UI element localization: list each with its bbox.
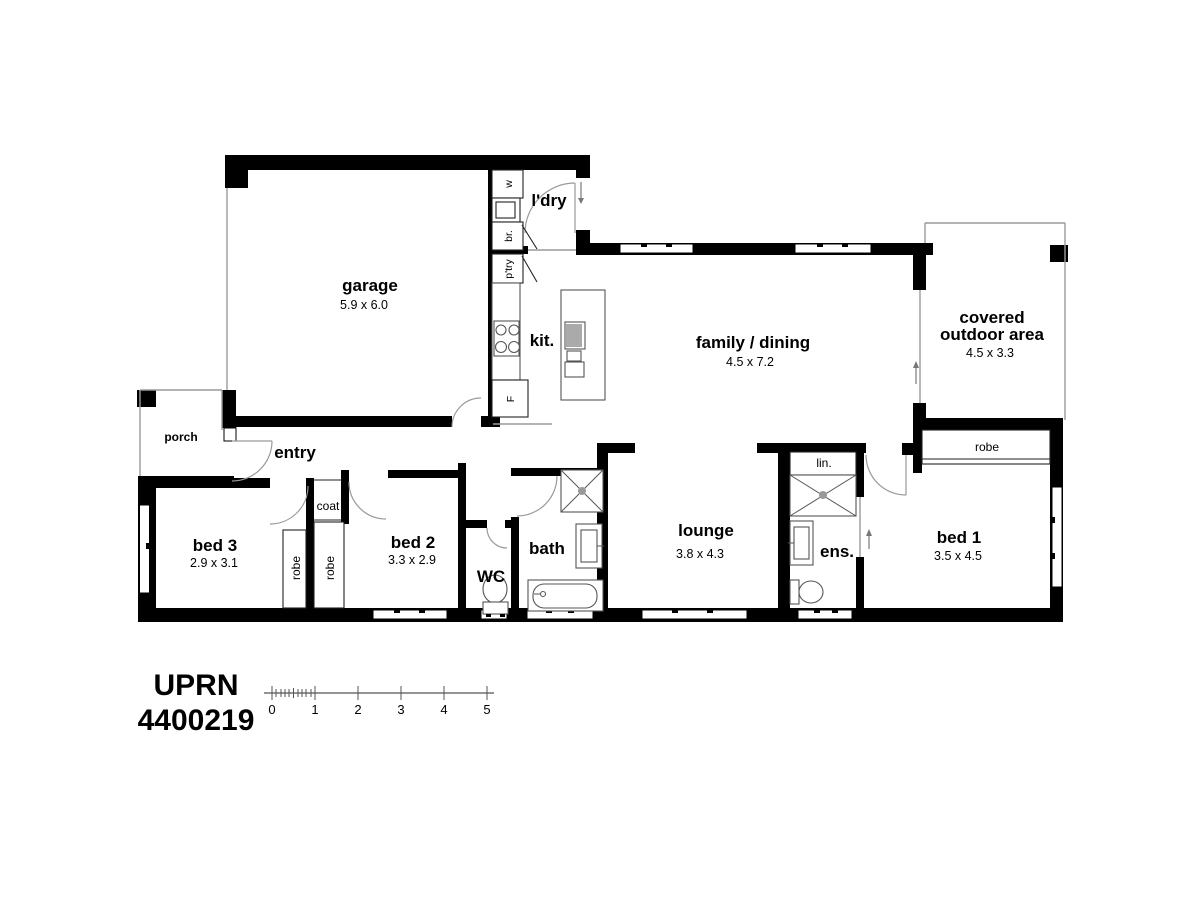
kitchen-island-icon	[561, 290, 605, 400]
laundry-exit-arrow-icon	[578, 182, 584, 204]
closets	[283, 430, 1050, 608]
floorplan-svg: garage 5.9 x 6.0 l'dry kit. family / din…	[0, 0, 1200, 900]
linen-label: lin.	[816, 456, 831, 470]
scale-tick-1: 1	[311, 702, 318, 717]
bathtub-icon	[528, 580, 603, 611]
family-dining-label: family / dining	[696, 333, 810, 352]
bed2-label: bed 2	[391, 533, 435, 552]
scale-tick-2: 2	[354, 702, 361, 717]
porch-label: porch	[164, 430, 197, 444]
robe-bed1-label: robe	[975, 440, 999, 454]
ensuite-vanity-icon	[788, 521, 813, 565]
scale-tick-0: 0	[268, 702, 275, 717]
bath-shower-icon	[561, 470, 603, 512]
outdoor-label-line2: outdoor area	[940, 325, 1044, 344]
uprn-line1: UPRN	[153, 669, 238, 702]
family-dining-dim: 4.5 x 7.2	[726, 355, 774, 369]
bath-label: bath	[529, 539, 565, 558]
broom-label: br.	[503, 230, 515, 242]
ensuite-shower-icon	[790, 475, 856, 516]
washer-label: w	[503, 180, 515, 189]
floorplan-page: garage 5.9 x 6.0 l'dry kit. family / din…	[0, 0, 1200, 900]
cooktop-icon	[492, 283, 520, 380]
bed1-dim: 3.5 x 4.5	[934, 549, 982, 563]
laundry-label: l'dry	[531, 191, 567, 210]
lounge-label: lounge	[678, 521, 734, 540]
bed3-dim: 2.9 x 3.1	[190, 556, 238, 570]
bed2-dim: 3.3 x 2.9	[388, 553, 436, 567]
bed3-label: bed 3	[193, 536, 237, 555]
coat-label: coat	[317, 499, 340, 513]
outdoor-slider-arrow-icon	[913, 361, 919, 384]
uprn-title: UPRN 4400219	[138, 669, 255, 737]
scale-tick-4: 4	[440, 702, 447, 717]
robe-bed2-label: robe	[323, 556, 337, 580]
wc-label: WC	[477, 567, 505, 586]
bed1-label: bed 1	[937, 528, 981, 547]
kitchen-label: kit.	[530, 331, 555, 350]
uprn-line2: 4400219	[138, 704, 255, 737]
scale-tick-3: 3	[397, 702, 404, 717]
pantry-label: p'try	[503, 258, 515, 278]
laundry-trough-icon	[492, 198, 520, 222]
bed1-hall-arrow-icon	[866, 529, 872, 549]
ensuite-label: ens.	[820, 542, 854, 561]
bath-vanity-icon	[576, 524, 604, 568]
garage-dim: 5.9 x 6.0	[340, 298, 388, 312]
lounge-dim: 3.8 x 4.3	[676, 547, 724, 561]
scale-tick-5: 5	[483, 702, 490, 717]
robe-bed3-label: robe	[289, 556, 303, 580]
outdoor-dim: 4.5 x 3.3	[966, 346, 1014, 360]
scale-bar: 0 1 2 3 4 5	[264, 686, 494, 717]
front-door-jamb	[224, 428, 236, 441]
garage-label: garage	[342, 276, 398, 295]
entry-label: entry	[274, 443, 316, 462]
ensuite-toilet-icon	[790, 580, 823, 604]
fridge-label: F	[505, 396, 517, 402]
